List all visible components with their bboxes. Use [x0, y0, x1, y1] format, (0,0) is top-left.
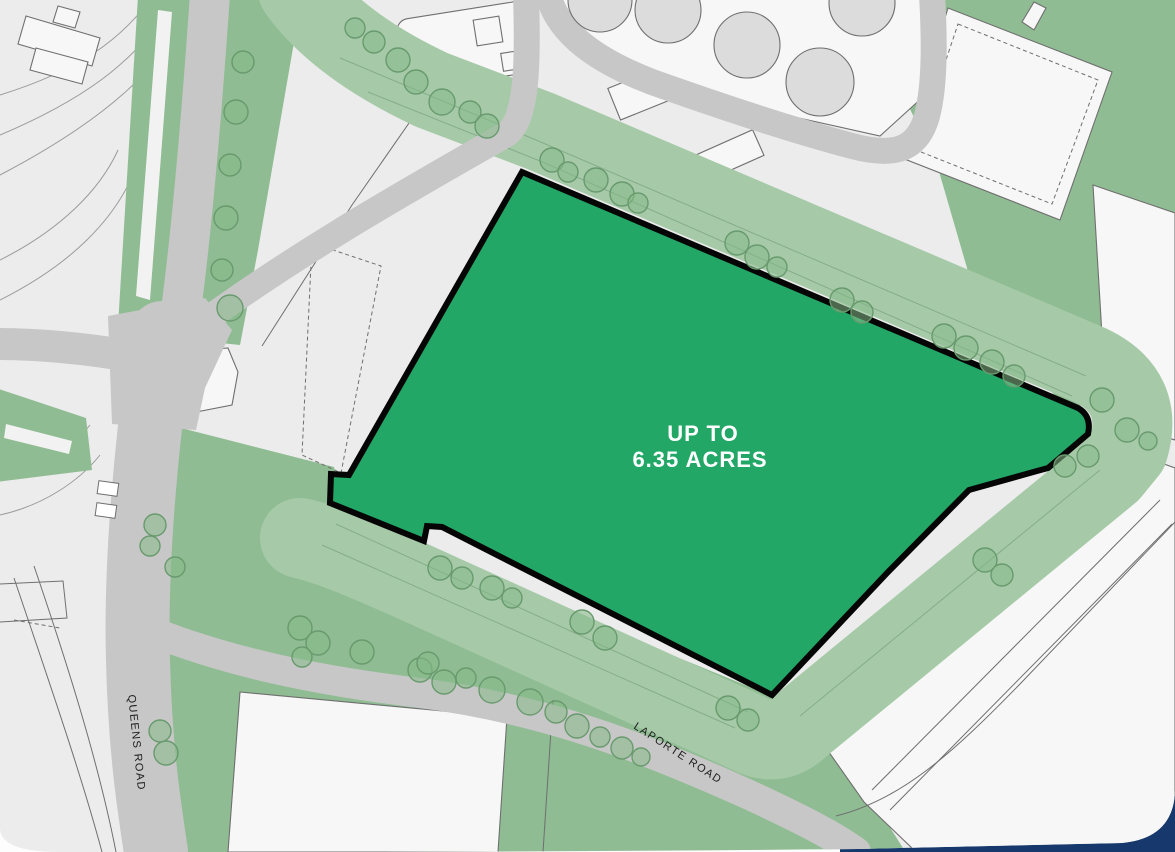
- tree-icon: [1115, 418, 1139, 442]
- tree-icon: [558, 162, 578, 182]
- tree-icon: [611, 737, 633, 759]
- parcel-label-line2: 6.35 ACRES: [632, 447, 767, 472]
- tree-icon: [745, 245, 769, 269]
- tree-icon: [1090, 388, 1114, 412]
- tree-icon: [954, 336, 978, 360]
- tree-icon: [1054, 455, 1076, 477]
- tree-icon: [767, 257, 787, 277]
- tree-icon: [219, 154, 241, 176]
- tank-icon: [786, 48, 854, 116]
- tree-icon: [632, 748, 650, 766]
- tree-icon: [144, 514, 166, 536]
- building-footprint: [473, 16, 503, 46]
- tree-icon: [932, 324, 956, 348]
- tree-icon: [628, 193, 648, 213]
- tree-icon: [432, 670, 456, 694]
- tree-icon: [980, 350, 1004, 374]
- tree-icon: [350, 640, 374, 664]
- tree-icon: [593, 626, 617, 650]
- tree-icon: [214, 206, 238, 230]
- tree-icon: [1003, 365, 1025, 387]
- tree-icon: [165, 557, 185, 577]
- tree-icon: [590, 727, 610, 747]
- tree-icon: [232, 51, 254, 73]
- tree-icon: [570, 610, 594, 634]
- tree-icon: [991, 564, 1013, 586]
- tree-icon: [479, 677, 505, 703]
- tree-icon: [716, 696, 740, 720]
- tree-icon: [149, 720, 171, 742]
- tree-icon: [1139, 432, 1157, 450]
- site-plan-page: UP TO 6.35 ACRES QUEENS ROAD LAPORTE ROA…: [0, 0, 1175, 852]
- tree-icon: [456, 668, 476, 688]
- tree-icon: [565, 714, 589, 738]
- tree-icon: [451, 567, 473, 589]
- tree-icon: [386, 48, 410, 72]
- tree-icon: [545, 701, 567, 723]
- tree-icon: [475, 114, 499, 138]
- tree-icon: [480, 576, 504, 600]
- tree-icon: [429, 89, 455, 115]
- tree-icon: [224, 100, 248, 124]
- tree-icon: [737, 709, 759, 731]
- tree-icon: [292, 647, 312, 667]
- tree-icon: [211, 259, 233, 281]
- tree-icon: [830, 288, 854, 312]
- tree-icon: [140, 536, 160, 556]
- tree-icon: [417, 652, 439, 674]
- crossing-island: [97, 481, 119, 497]
- tree-icon: [725, 231, 749, 255]
- tree-icon: [345, 18, 365, 38]
- map-content: UP TO 6.35 ACRES QUEENS ROAD LAPORTE ROA…: [0, 0, 1175, 852]
- tree-icon: [584, 168, 608, 192]
- tree-icon: [1077, 445, 1099, 467]
- parcel-label-line1: UP TO: [667, 421, 738, 446]
- tree-icon: [404, 70, 428, 94]
- tree-icon: [428, 556, 452, 580]
- tree-icon: [517, 689, 543, 715]
- tree-icon: [851, 301, 873, 323]
- site-plan-map: UP TO 6.35 ACRES QUEENS ROAD LAPORTE ROA…: [0, 0, 1175, 852]
- plot-bottom-centre: [228, 692, 507, 852]
- tree-icon: [502, 588, 522, 608]
- tree-icon: [154, 741, 178, 765]
- tank-icon: [714, 12, 780, 78]
- crossing-island: [95, 503, 117, 519]
- tree-icon: [217, 295, 243, 321]
- tree-icon: [363, 31, 385, 53]
